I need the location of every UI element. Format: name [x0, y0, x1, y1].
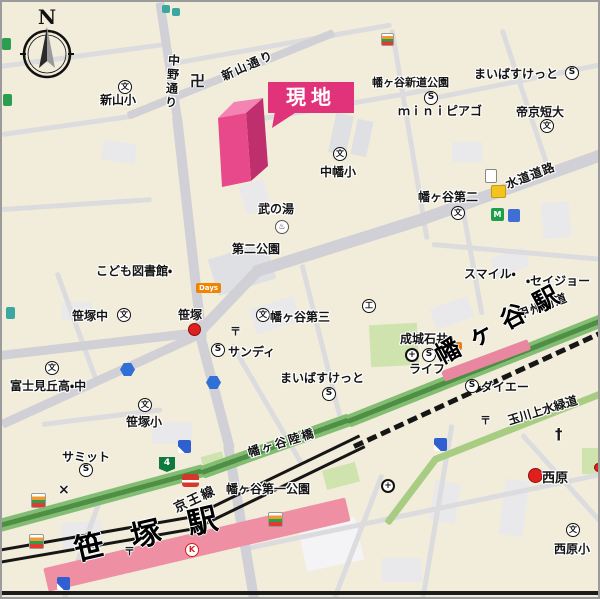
- school-icon: 文: [138, 398, 152, 412]
- supermarket-icon: S: [322, 387, 336, 401]
- police-box-icon: ×: [58, 482, 70, 498]
- k-store-icon: K: [185, 543, 199, 557]
- school-icon: 文: [117, 308, 131, 322]
- map-frame-bottom: [2, 591, 598, 595]
- street-label-suido-doro: 水道道路: [503, 158, 558, 193]
- school-icon: 文: [451, 206, 465, 220]
- poi-dot: [594, 463, 600, 472]
- label-daini-park: 第二公園: [232, 240, 280, 257]
- sasazuka-crossing-dot: [188, 323, 201, 336]
- convenience-store-icon: [31, 493, 46, 508]
- school-icon: 文: [333, 147, 347, 161]
- post-office-icon: 〒: [480, 412, 491, 428]
- hospital-icon: +: [381, 479, 395, 493]
- label-sasazuka-crossing: 笹塚: [178, 306, 202, 323]
- street: [500, 29, 550, 165]
- street: [390, 29, 430, 240]
- edge-store-icon: [172, 8, 180, 16]
- bath-house-icon: ♨: [275, 220, 289, 234]
- site-building-marker: [206, 86, 276, 191]
- building-block: [540, 201, 571, 239]
- church-icon: †: [555, 425, 563, 443]
- label-mini-piago: ｍｉｎｉピアゴ: [398, 102, 482, 119]
- edge-store-icon: [162, 5, 170, 13]
- convenience-store-icon: [268, 512, 283, 527]
- temple-manji-icon: 卍: [190, 70, 205, 91]
- convenience-store-icon: [381, 33, 394, 46]
- building-block: [350, 119, 373, 158]
- label-nakahata-elementary: 中幡小: [320, 163, 356, 180]
- street-label-tamagawa: 玉川上水緑道: [506, 391, 580, 428]
- label-sasazuka-elementary: 笹塚小: [126, 413, 162, 430]
- label-take-no-yu: 武の湯: [258, 200, 294, 217]
- street: [167, 22, 392, 67]
- street-label-nakano-dori: 中野通り: [162, 53, 183, 110]
- building-block: [452, 142, 482, 162]
- map-canvas: 現地 笹塚駅 幡ヶ谷駅 新山通り 中野通り 水道道路 甲州街道 幡ヶ谷陸橋 京王…: [0, 0, 600, 599]
- label-hatagaya-daini: 幡ヶ谷第二: [418, 188, 478, 205]
- school-icon: 文: [256, 308, 270, 322]
- label-hatagaya-daisan: 幡ヶ谷第三: [270, 308, 330, 325]
- post-office-icon: 〒: [230, 323, 241, 339]
- subway-entrance-icon: [57, 577, 70, 590]
- supermarket-icon: S: [79, 463, 93, 477]
- label-hatagaya-shindo-park: 幡ヶ谷新道公園: [372, 74, 449, 90]
- factory-icon: 工: [362, 299, 376, 313]
- supermarket-icon: S: [211, 343, 225, 357]
- label-kodomo-library: こども図書館・: [96, 262, 172, 279]
- edge-store-icon: [3, 94, 12, 106]
- site-callout: 現地: [268, 82, 354, 113]
- supermarket-icon: S: [465, 379, 479, 393]
- building-block: [382, 558, 422, 582]
- compass-north-label: N: [38, 6, 56, 29]
- store-icon-red: [182, 474, 199, 487]
- label-sasazuka-junior-high: 笹塚中: [72, 307, 108, 324]
- street: [2, 197, 152, 212]
- label-smile-drugstore: スマイル・: [464, 265, 516, 282]
- label-daiei: ダイエー: [481, 378, 529, 395]
- convenience-store-icon: [29, 534, 44, 549]
- street: [300, 264, 345, 425]
- school-icon: 文: [540, 119, 554, 133]
- building-poi-icon: [508, 209, 520, 222]
- subway-entrance-icon: [178, 440, 191, 453]
- temple-building-icon: [485, 169, 497, 183]
- supermarket-icon: S: [565, 66, 579, 80]
- nishihara-dot: [528, 468, 543, 483]
- compass: N: [18, 6, 76, 84]
- edge-store-icon: [2, 38, 11, 50]
- building-block: [101, 140, 137, 165]
- label-maibasuketto-south: まいばすけっと: [280, 369, 364, 386]
- street: [2, 114, 130, 137]
- label-teikyo-tandai: 帝京短大: [516, 103, 564, 120]
- route-4-shield-icon: 4: [159, 457, 175, 472]
- shop-icon-yellow: [491, 185, 506, 198]
- label-fujimigaoka: 富士見丘高・中: [10, 377, 86, 394]
- edge-store-icon: [6, 307, 15, 319]
- street: [55, 272, 100, 384]
- metro-icon: M: [491, 208, 504, 221]
- days-store-icon: Days: [196, 283, 221, 293]
- school-icon: 文: [45, 361, 59, 375]
- label-nishihara: 西原: [542, 467, 568, 486]
- school-icon: 文: [566, 523, 580, 537]
- label-maibasuketto-north: まいばすけっと: [474, 65, 558, 82]
- label-summit: サミット: [62, 448, 110, 465]
- label-shinyama-elementary: 新山小: [100, 91, 136, 108]
- label-nishihara-elementary: 西原小: [554, 540, 590, 557]
- subway-entrance-icon: [434, 438, 447, 451]
- label-sandy: サンディ: [228, 343, 275, 360]
